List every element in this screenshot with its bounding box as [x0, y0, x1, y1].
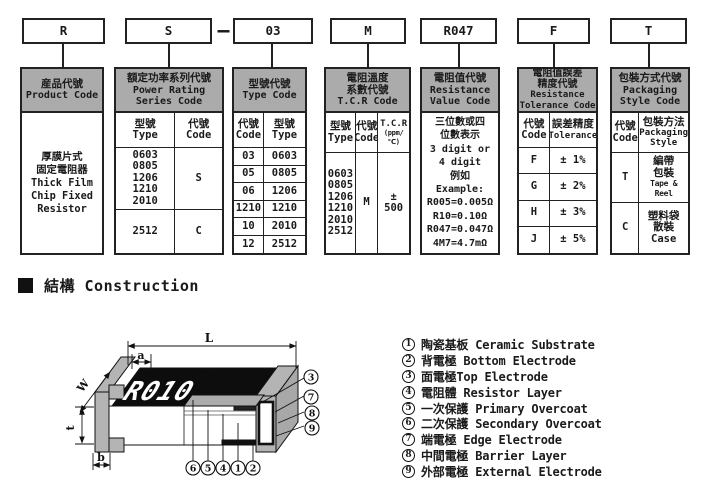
header-en: Resistance	[530, 90, 584, 100]
legend-text: 外部電極 External Electrode	[421, 463, 602, 480]
legend-number: 4	[402, 386, 415, 399]
table-cell: 2512	[264, 236, 305, 254]
subheader-code: 代號Code	[234, 113, 264, 148]
value-line: R005=0.005Ω	[427, 196, 493, 209]
header-zh: 精度代號	[538, 80, 578, 91]
callout-3: 3	[308, 372, 315, 383]
connector-line	[458, 44, 460, 67]
value-line: 例如	[450, 170, 470, 183]
dim-label-a: a	[137, 349, 144, 362]
callout-4: 4	[220, 463, 227, 474]
callout-5: 5	[205, 463, 212, 474]
legend-item: 5 一次保護 Primary Overcoat	[402, 400, 602, 416]
value-line: 4 digit	[439, 156, 481, 169]
table-cell: 0603	[264, 148, 305, 166]
legend-text: 背電極 Bottom Electrode	[421, 352, 576, 369]
legend-item: 4 電阻體 Resistor Layer	[402, 384, 602, 400]
callout-8: 8	[309, 408, 316, 419]
product-line: Resistor	[37, 203, 87, 216]
legend-number: 5	[402, 402, 415, 415]
legend-number: 8	[402, 449, 415, 462]
table-cell: 12	[234, 236, 264, 254]
table-cell: ± 2%	[550, 174, 596, 200]
series-types-cell: 0603 0805 1206 1210 2010	[116, 148, 175, 210]
bottom-electrode-layer	[222, 440, 256, 445]
column-tolerance: 電阻值誤差 精度代號 Resistance Tolerance Code 代號C…	[517, 67, 598, 255]
legend-text: 電阻體 Resistor Layer	[421, 384, 562, 401]
table-cell: 1206	[264, 183, 305, 201]
legend-item: 6 二次保護 Secondary Overcoat	[402, 416, 602, 432]
series-type2-cell: 2512	[116, 210, 175, 253]
code-box-series: S	[125, 18, 212, 44]
code-box-packaging: T	[610, 18, 687, 44]
tcr-code-cell: M	[356, 153, 378, 253]
callout-7: 7	[308, 392, 315, 403]
legend-text: 面電極Top Electrode	[421, 368, 548, 385]
table-cell: ± 3%	[550, 201, 596, 227]
column-tcr-body: 型號Type 代號Code T.C.R(ppm/℃) 0603 0805 120…	[324, 113, 411, 255]
connector-line	[553, 44, 555, 67]
section-title: 結構 Construction	[44, 275, 199, 296]
legend-text: 一次保護 Primary Overcoat	[421, 400, 588, 417]
column-series-header: 額定功率系列代號 Power Rating Series Code	[114, 67, 224, 113]
resistor-marking-text: R010	[119, 377, 199, 407]
legend-number: 6	[402, 417, 415, 430]
product-line: Chip Fixed	[31, 190, 93, 203]
header-en: Resistance	[430, 85, 490, 96]
product-line: 厚膜片式	[41, 151, 82, 164]
header-zh: 包裝方式代號	[619, 73, 682, 85]
table-cell: 2010	[264, 218, 305, 236]
value-line: 4M7=4.7mΩ	[433, 237, 487, 250]
header-en: Product Code	[26, 90, 98, 101]
column-type: 型號代號 Type Code 代號Code 型號Type 03 0603 05 …	[232, 67, 307, 255]
callout-6: 6	[190, 463, 197, 474]
column-product-body: 厚膜片式 固定電阻器 Thick Film Chip Fixed Resisto…	[20, 113, 104, 255]
table-cell: 06	[234, 183, 264, 201]
subheader-type: 型號Type	[116, 113, 175, 148]
column-packaging-body: 代號Code 包裝方法 Packaging Style T 編帶 包裝 Tape…	[610, 113, 690, 255]
connector-line	[367, 44, 369, 67]
legend-text: 二次保護 Secondary Overcoat	[421, 415, 602, 432]
header-zh: 電阻值代號	[434, 73, 487, 85]
subheader-code: 代號Code	[519, 113, 550, 148]
overcoat-cut-band	[184, 395, 264, 406]
left-cap-bottom-tab	[109, 438, 124, 452]
series-code-cell: S	[175, 148, 222, 210]
header-zh: 型號代號	[249, 79, 291, 91]
table-cell: J	[519, 227, 550, 253]
connector-line	[168, 44, 170, 67]
column-packaging: 包裝方式代號 Packaging Style Code 代號Code 包裝方法 …	[610, 67, 690, 255]
column-packaging-header: 包裝方式代號 Packaging Style Code	[610, 67, 690, 113]
cross-section-face	[109, 406, 256, 445]
legend-number: 1	[402, 338, 415, 351]
legend-text: 陶瓷基板 Ceramic Substrate	[421, 336, 595, 353]
legend-item: 8 中間電極 Barrier Layer	[402, 448, 602, 464]
header-en: Type Code	[242, 90, 296, 101]
code-box-product: R	[22, 18, 105, 44]
header-zh: 額定功率系列代號	[127, 73, 211, 85]
construction-heading: 結構 Construction	[18, 275, 199, 296]
header-en: T.C.R Code	[337, 96, 397, 107]
value-line: 三位數或四	[435, 116, 485, 129]
subheader-type: 型號Type	[326, 113, 356, 153]
table-cell: 0805	[264, 166, 305, 184]
subheader-code: 代號Code	[356, 113, 378, 153]
header-en: Style Code	[620, 96, 680, 107]
column-value-header: 電阻值代號 Resistance Value Code	[420, 67, 500, 113]
subheader-code: 代號Code	[175, 113, 222, 148]
value-line: 位數表示	[440, 129, 480, 142]
connector-line	[271, 44, 273, 67]
table-cell: 03	[234, 148, 264, 166]
column-tolerance-header: 電阻值誤差 精度代號 Resistance Tolerance Code	[517, 67, 598, 113]
value-line: Example:	[436, 183, 484, 196]
left-cap-front-face	[95, 392, 109, 452]
legend-number: 7	[402, 433, 415, 446]
table-cell: G	[519, 174, 550, 200]
top-electrode-layer	[234, 406, 256, 410]
connector-line	[62, 44, 64, 67]
packaging-code-cell: C	[612, 203, 639, 253]
legend-item: 1 陶瓷基板 Ceramic Substrate	[402, 337, 602, 353]
external-electrode-face	[259, 402, 273, 444]
callout-2: 2	[250, 463, 257, 474]
header-en: Series Code	[136, 96, 202, 107]
column-tcr-header: 電阻溫度 系數代號 T.C.R Code	[324, 67, 411, 113]
table-cell: 1210	[234, 201, 264, 219]
datasheet-page: R S — 03 M R047 F T 産品代號 Product Code 厚膜…	[0, 0, 727, 482]
code-box-value: R047	[420, 18, 497, 44]
section-bullet-square	[18, 278, 33, 293]
subheader-tolerance: 誤差精度Tolerance	[550, 113, 596, 148]
legend-number: 2	[402, 354, 415, 367]
legend-number: 3	[402, 370, 415, 383]
subheader-packaging: 包裝方法 Packaging Style	[639, 113, 688, 153]
tcr-value-cell: ± 500	[378, 153, 409, 253]
legend-item: 2 背電極 Bottom Electrode	[402, 353, 602, 369]
dash-separator: —	[212, 17, 234, 43]
dim-label-L: L	[205, 331, 214, 345]
table-cell: 05	[234, 166, 264, 184]
legend-item: 9 外部電極 External Electrode	[402, 463, 602, 479]
packaging-style-cell: 編帶 包裝 Tape & Reel	[639, 153, 688, 203]
header-en: Power Rating	[133, 85, 205, 96]
left-cap-top-tab	[109, 385, 124, 399]
column-product-header: 産品代號 Product Code	[20, 67, 104, 113]
table-cell: ± 1%	[550, 148, 596, 174]
code-box-tolerance: F	[517, 18, 590, 44]
legend-item: 3 面電極Top Electrode	[402, 369, 602, 385]
value-line: R10=0.10Ω	[433, 210, 487, 223]
product-line: 固定電阻器	[36, 164, 87, 177]
callout-9: 9	[309, 423, 316, 434]
header-zh: 系數代號	[347, 85, 389, 97]
column-series-body: 型號Type 代號Code 0603 0805 1206 1210 2010 S…	[114, 113, 224, 255]
column-type-header: 型號代號 Type Code	[232, 67, 307, 113]
column-value: 電阻值代號 Resistance Value Code 三位數或四 位數表示 3…	[420, 67, 500, 255]
subheader-tcr: T.C.R(ppm/℃)	[378, 113, 409, 153]
product-line: Thick Film	[31, 177, 93, 190]
resistor-construction-diagram: R010 L a W t b	[62, 322, 392, 482]
header-en: Tolerance Code	[520, 101, 596, 111]
column-tolerance-body: 代號Code 誤差精度Tolerance F ± 1% G ± 2% H ± 3…	[517, 113, 598, 255]
packaging-style-cell: 塑料袋 散裝 Case	[639, 203, 688, 253]
value-line: R047=0.047Ω	[427, 223, 493, 236]
legend-item: 7 端電極 Edge Electrode	[402, 432, 602, 448]
table-cell: 10	[234, 218, 264, 236]
column-tcr: 電阻溫度 系數代號 T.C.R Code 型號Type 代號Code T.C.R…	[324, 67, 411, 255]
tcr-types-cell: 0603 0805 1206 1210 2010 2512	[326, 153, 356, 253]
header-zh: 産品代號	[41, 79, 83, 91]
column-type-body: 代號Code 型號Type 03 0603 05 0805 06 1206 12…	[232, 113, 307, 255]
code-box-type: 03	[233, 18, 313, 44]
legend-number: 9	[402, 465, 415, 478]
series-code2-cell: C	[175, 210, 222, 253]
table-cell: ± 5%	[550, 227, 596, 253]
construction-legend: 1 陶瓷基板 Ceramic Substrate 2 背電極 Bottom El…	[402, 337, 602, 479]
table-cell: F	[519, 148, 550, 174]
header-zh: 電阻溫度	[347, 73, 389, 85]
subheader-type: 型號Type	[264, 113, 305, 148]
dim-label-b: b	[97, 451, 105, 464]
header-en: Value Code	[430, 96, 490, 107]
callout-1: 1	[235, 463, 242, 474]
column-series: 額定功率系列代號 Power Rating Series Code 型號Type…	[114, 67, 224, 255]
connector-line	[648, 44, 650, 67]
table-cell: H	[519, 201, 550, 227]
dim-label-t: t	[64, 425, 77, 431]
table-cell: 1210	[264, 201, 305, 219]
packaging-code-cell: T	[612, 153, 639, 203]
value-line: 3 digit or	[430, 143, 490, 156]
column-value-body: 三位數或四 位數表示 3 digit or 4 digit 例如 Example…	[420, 113, 500, 255]
code-box-tcr: M	[330, 18, 406, 44]
column-product: 産品代號 Product Code 厚膜片式 固定電阻器 Thick Film …	[20, 67, 104, 255]
legend-text: 端電極 Edge Electrode	[421, 431, 562, 448]
subheader-code: 代號Code	[612, 113, 639, 153]
header-en: Packaging	[623, 85, 677, 96]
dim-label-W: W	[74, 376, 93, 395]
legend-text: 中間電極 Barrier Layer	[421, 447, 567, 464]
